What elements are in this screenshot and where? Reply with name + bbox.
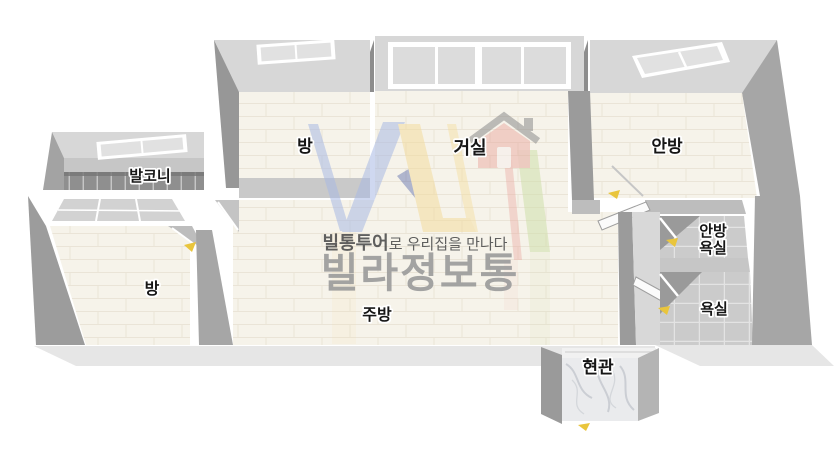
window-center-mullion [475, 45, 482, 86]
bath-right-wall [752, 196, 812, 345]
bath-divider-wall [660, 258, 750, 272]
watermark-text: 빌통투어로 우리집을 만나다 빌라정보통 [321, 233, 520, 296]
window-mullion [435, 47, 438, 84]
floorplan-svg: 빌통투어로 우리집을 만나다 빌라정보통 발코니 방 거실 안방 안방 욕실 욕… [0, 0, 840, 472]
bedroom-top-floor [239, 92, 370, 178]
label-bedroom-top: 방 [297, 137, 313, 156]
bedroom-top-block [214, 39, 374, 198]
wall-end-sliver [370, 40, 374, 92]
entrance-left-wall [541, 347, 562, 424]
label-living: 거실 [453, 138, 486, 158]
label-master: 안방 [651, 137, 683, 156]
label-kitchen: 주방 [362, 306, 392, 324]
entrance-right-wall [638, 348, 659, 421]
living-block [375, 36, 588, 93]
logo-green-reflection [530, 252, 550, 345]
bedroom-kitchen-wall [196, 230, 233, 345]
window-mullion [521, 47, 524, 84]
hall-wall-right [645, 200, 746, 214]
label-master-bath-1: 안방 [699, 222, 727, 240]
master-block [590, 40, 800, 198]
watermark-brand: 빌라정보통 [321, 250, 520, 296]
label-master-bath-2: 욕실 [699, 240, 727, 257]
label-bedroom-bottom: 방 [145, 280, 160, 298]
bathroom-block [655, 196, 834, 366]
door-marker [578, 423, 590, 431]
bedroom-top-bottom-wall [239, 178, 370, 198]
floorplan-page: 빌통투어로 우리집을 만나다 빌라정보통 발코니 방 거실 안방 안방 욕실 욕… [0, 0, 840, 472]
hall-wall-left [572, 200, 600, 214]
label-entrance: 현관 [582, 358, 614, 377]
balcony-block [43, 132, 204, 190]
fascia-right [655, 345, 834, 366]
label-balcony: 발코니 [129, 168, 170, 185]
house-door [497, 147, 511, 168]
living-master-wall [568, 91, 594, 200]
house-chimney [524, 118, 533, 131]
window-bar [58, 210, 188, 211]
label-bath: 욕실 [700, 301, 728, 318]
wall-end-sliver [584, 40, 588, 93]
bedroom-bottom-block [28, 195, 233, 345]
